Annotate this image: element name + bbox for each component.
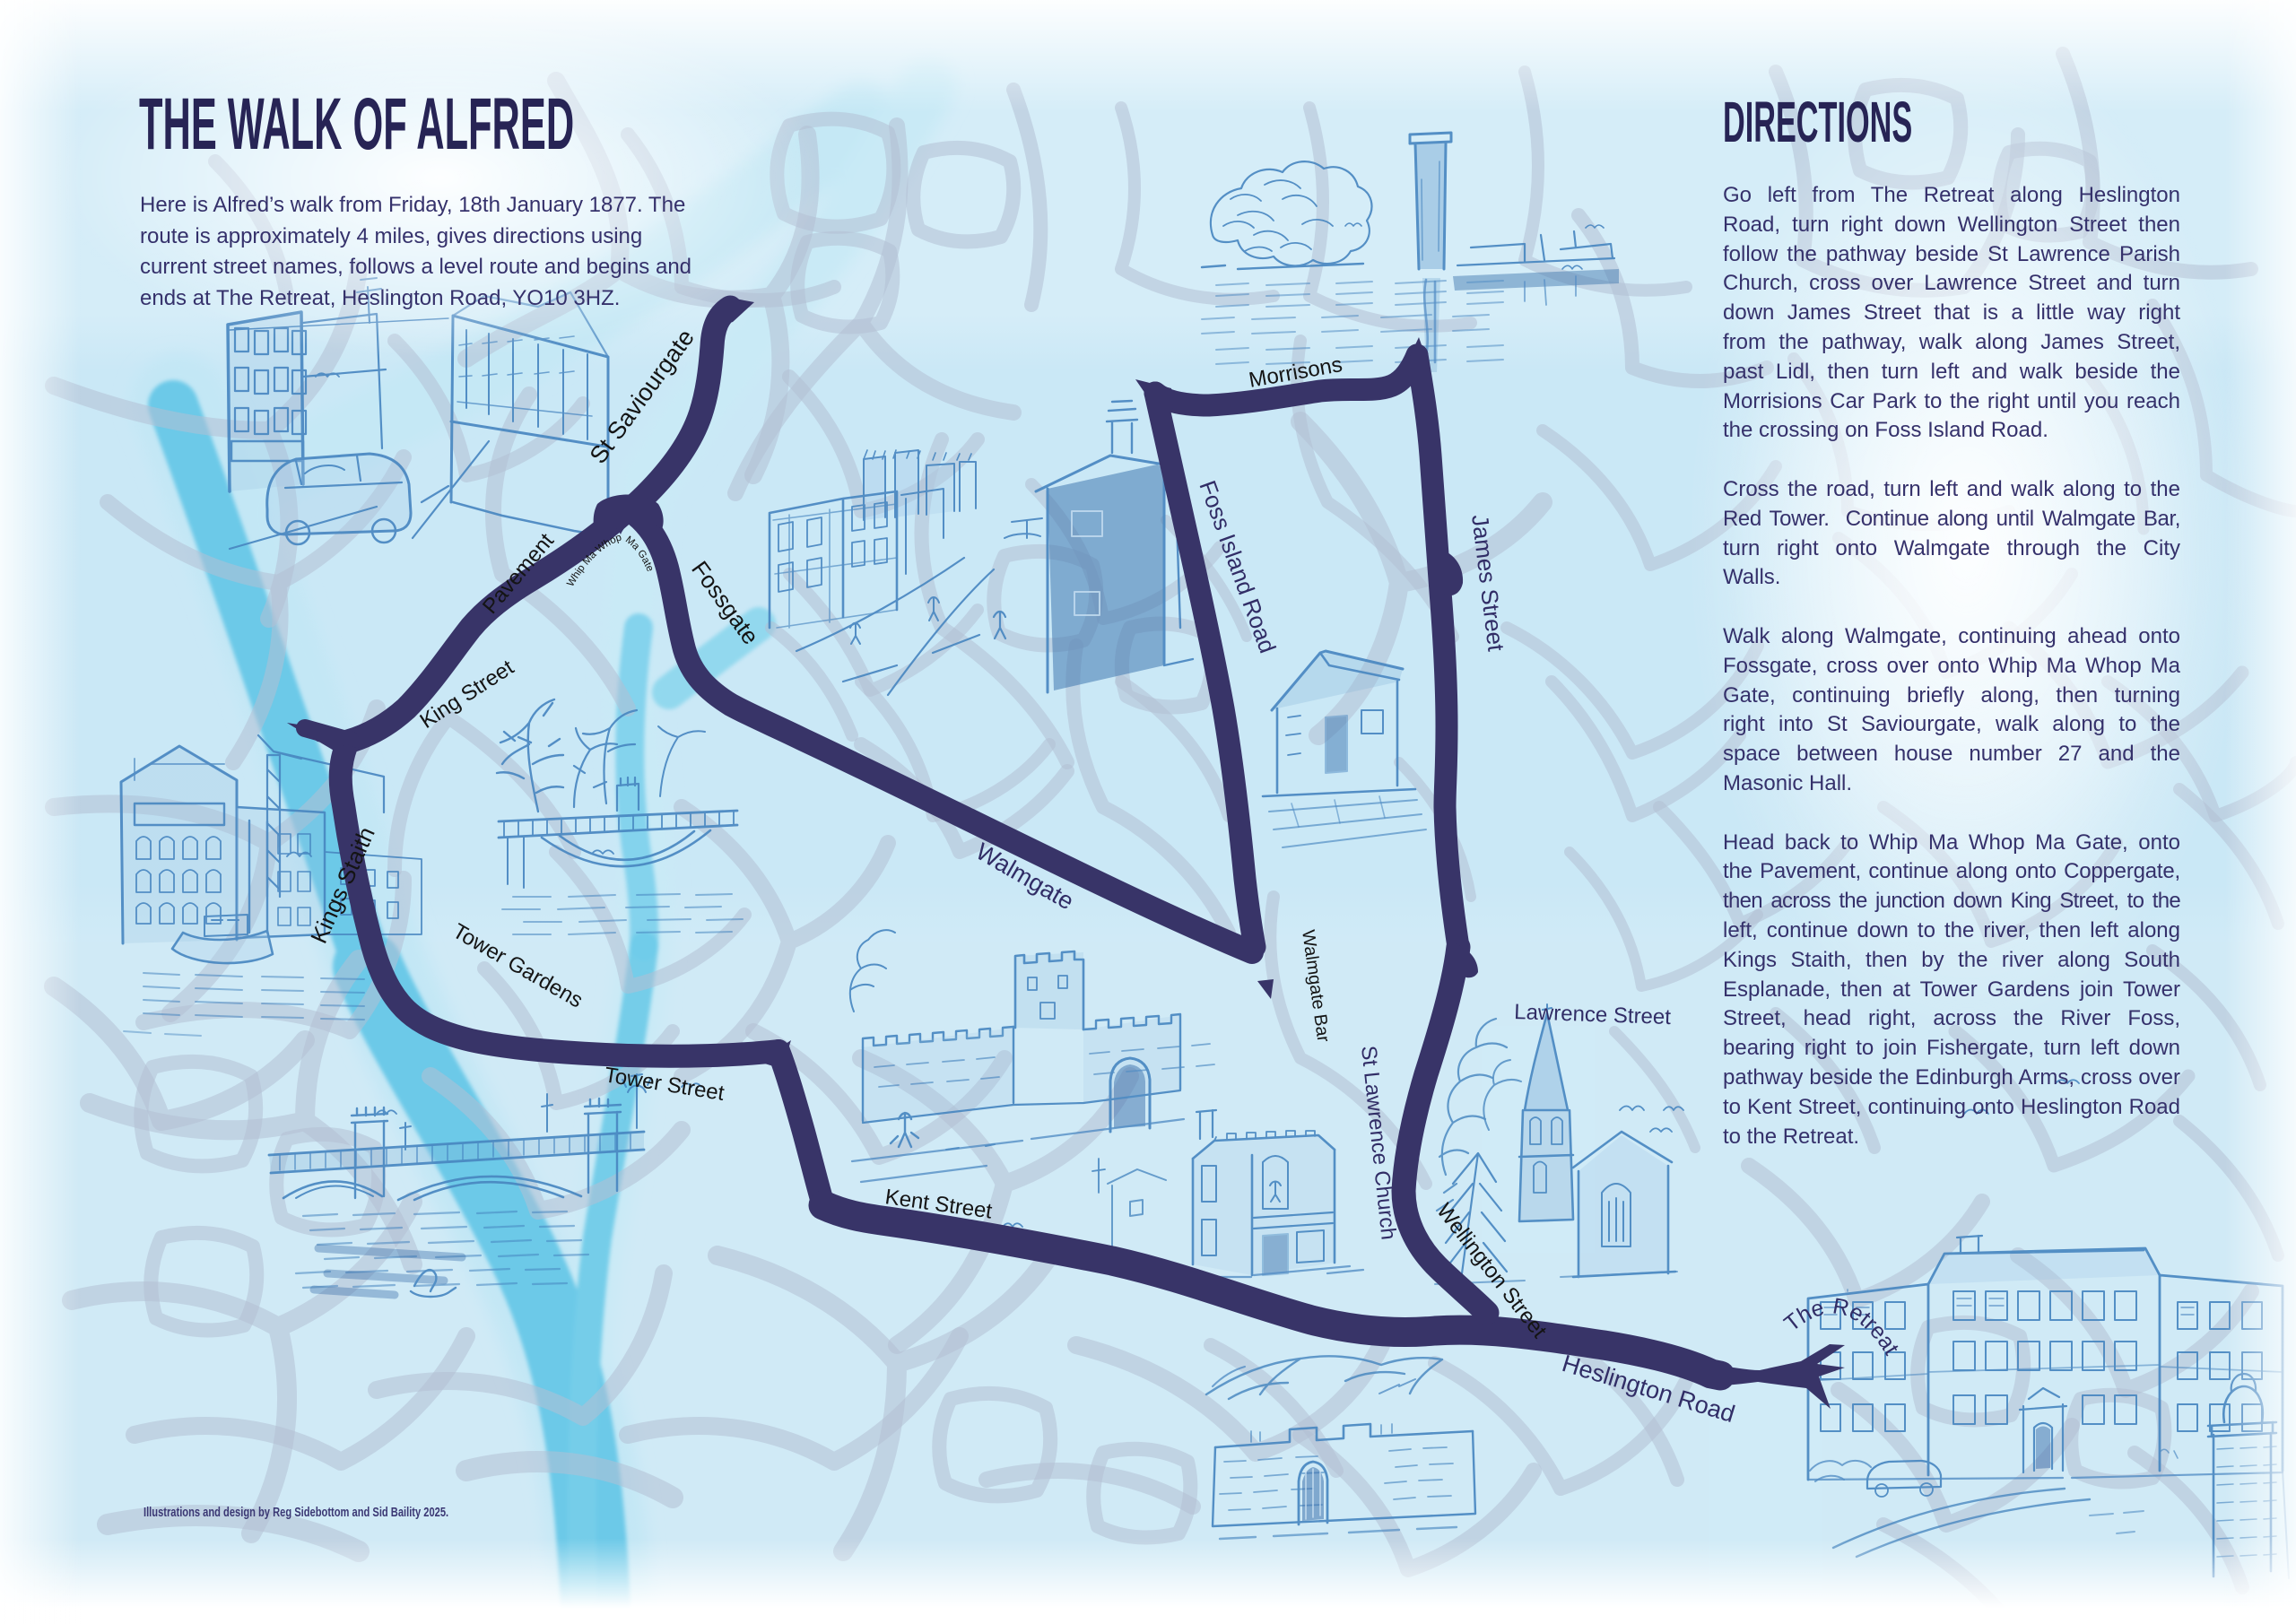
- svg-text:Heslington Road: Heslington Road: [1559, 1350, 1738, 1428]
- svg-text:James Street: James Street: [1466, 513, 1510, 653]
- svg-text:Whip Ma Whop Ma Gate: Whip Ma Whop Ma Gate: [565, 532, 655, 588]
- svg-text:Wellington Street: Wellington Street: [1431, 1199, 1552, 1343]
- svg-text:Walmgate: Walmgate: [971, 838, 1078, 915]
- svg-text:Tower Gardens: Tower Gardens: [448, 919, 587, 1013]
- svg-text:Kent Street: Kent Street: [883, 1185, 994, 1223]
- svg-text:King Street: King Street: [416, 656, 519, 734]
- svg-text:The Retreat: The Retreat: [1779, 1293, 1904, 1359]
- svg-text:Kings Staith: Kings Staith: [305, 822, 380, 947]
- svg-text:Lawrence Street: Lawrence Street: [1514, 1000, 1672, 1029]
- svg-text:Foss Island Road: Foss Island Road: [1194, 477, 1281, 656]
- svg-text:Walmgate Bar: Walmgate Bar: [1298, 929, 1333, 1044]
- svg-text:Tower Street: Tower Street: [603, 1063, 726, 1106]
- svg-text:Pavement: Pavement: [478, 528, 559, 618]
- svg-text:Morrisons: Morrisons: [1247, 352, 1344, 393]
- svg-text:St Lawrence Church: St Lawrence Church: [1356, 1045, 1401, 1241]
- svg-text:St Saviourgate: St Saviourgate: [585, 325, 700, 469]
- svg-text:Fossgate: Fossgate: [686, 556, 764, 649]
